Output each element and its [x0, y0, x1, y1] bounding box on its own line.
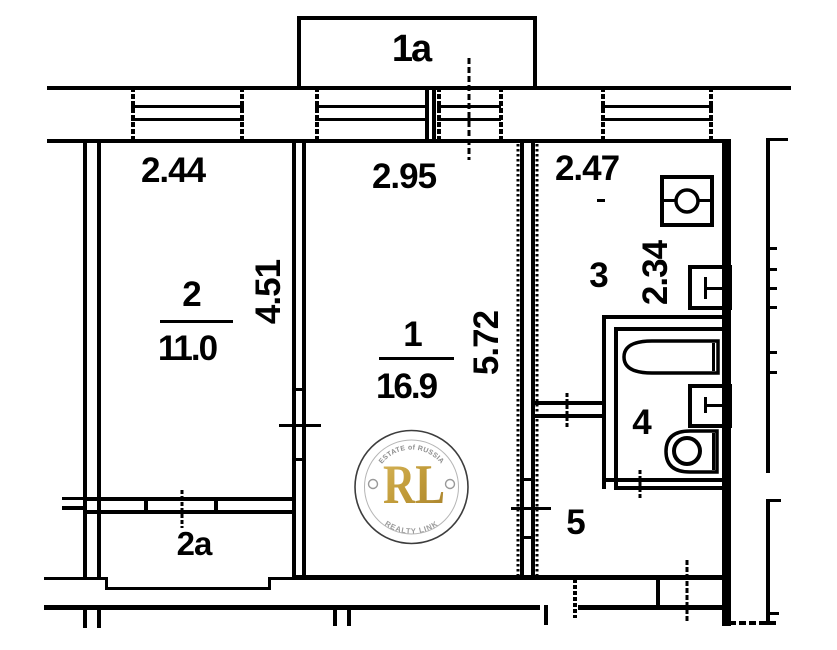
svg-text:2a: 2a	[177, 525, 213, 562]
svg-text:2: 2	[182, 275, 201, 314]
svg-text:2.34: 2.34	[636, 239, 675, 305]
svg-text:RL: RL	[383, 454, 445, 516]
svg-text:16.9: 16.9	[376, 367, 438, 406]
svg-text:2.44: 2.44	[141, 151, 207, 190]
svg-text:1: 1	[403, 315, 422, 354]
svg-text:3: 3	[589, 256, 608, 295]
svg-text:11.0: 11.0	[158, 329, 218, 368]
svg-text:1a: 1a	[392, 28, 433, 70]
svg-text:2.47: 2.47	[555, 149, 619, 188]
svg-text:4.51: 4.51	[249, 259, 288, 324]
svg-text:2.95: 2.95	[372, 157, 437, 196]
svg-text:5.72: 5.72	[467, 310, 506, 375]
svg-text:4: 4	[632, 403, 652, 442]
svg-text:5: 5	[566, 503, 585, 542]
